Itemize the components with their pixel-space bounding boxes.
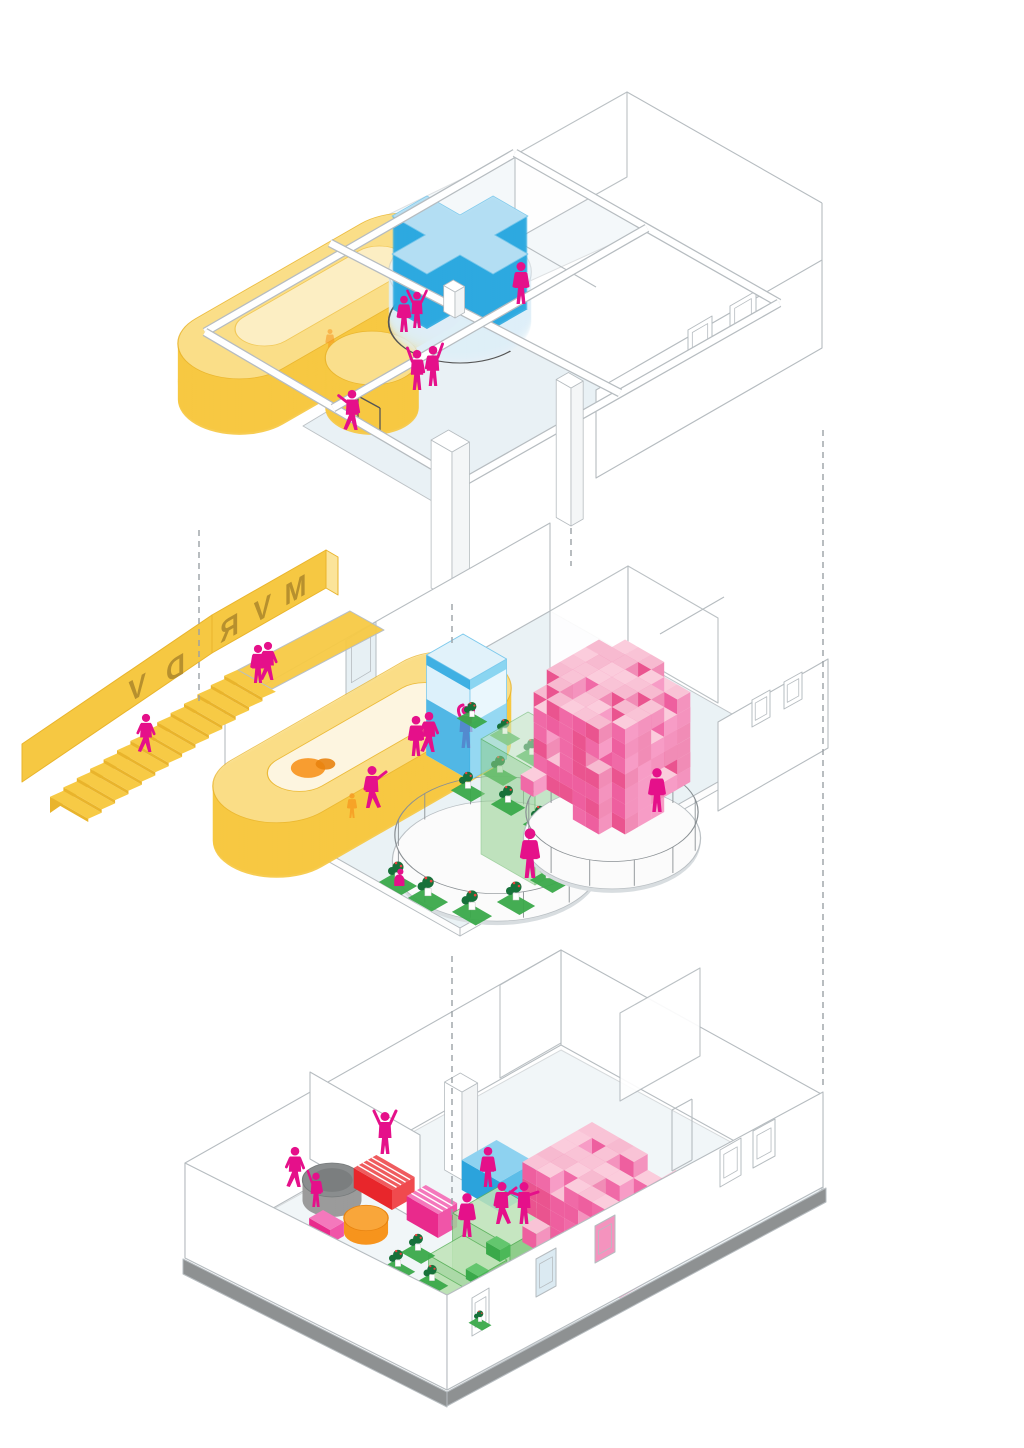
column-stub [444,280,465,318]
floor-top [152,92,822,600]
middle-right-wall [718,659,828,811]
floor-ground [183,950,826,1407]
hanging-column [556,373,583,527]
diagram-canvas: VDRVM [0,0,1024,1448]
parapet-endcap [326,550,338,595]
floor-middle: VDRVM [22,523,828,950]
top-right-wall [596,260,822,478]
exploded-axonometric-diagram: MVRDV VDRVM [0,0,1024,1448]
